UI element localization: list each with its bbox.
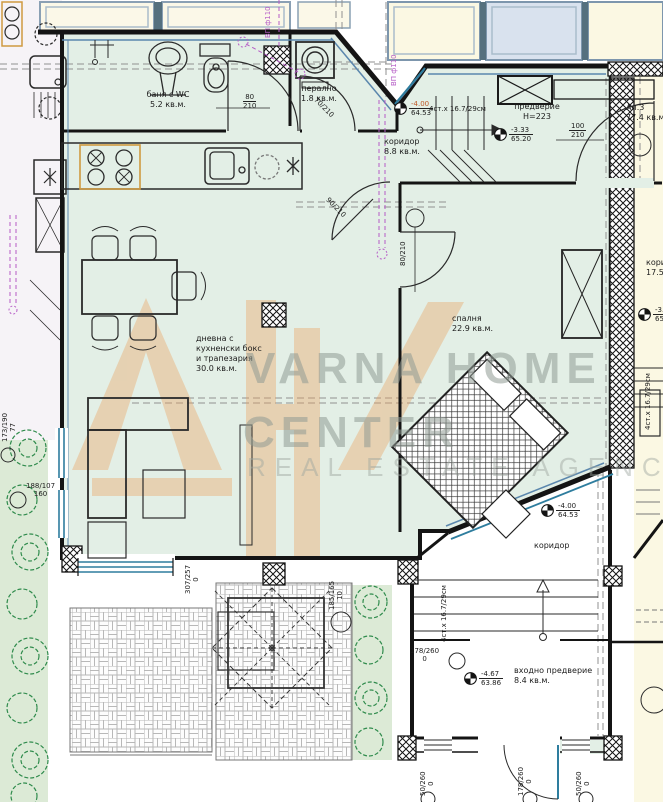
stairs-note-top: 4ст.х 16.7/29см <box>429 105 486 113</box>
pipe-label-top: ВП ф110 <box>264 6 272 38</box>
level-mark-icon <box>494 128 507 141</box>
room-label-bathroom: баня с WC5.2 кв.м. <box>136 90 200 110</box>
dim-west-window-a: 173/19077 <box>1 413 17 442</box>
dim-entry-opening: 178/2600 <box>410 647 439 663</box>
level-mark-icon <box>394 102 407 115</box>
garden-umbrella-table <box>212 588 332 708</box>
level-mark-icon <box>638 308 651 321</box>
pipe-label-corridor: ВП ф110 <box>390 54 398 86</box>
dim-living-window: 307/2570 <box>184 565 200 594</box>
dim-south-window-right: 50/2600 <box>575 771 591 796</box>
level-mark-icon <box>541 504 554 517</box>
room-label-bedroom: спалня22.9 кв.м. <box>452 314 493 334</box>
stairs-note-bottom: 4ст.х 16.7/29см <box>440 585 448 642</box>
level-marker-corridor-top: -4.0064.53 <box>394 100 433 118</box>
dim-south-door: 178/2600 <box>517 767 533 796</box>
terrace-paving <box>70 583 352 760</box>
room-label-corridor-bottom: коридор <box>534 541 570 551</box>
room-label-vestibule: предвериеН=223 <box>498 102 576 122</box>
level-marker-right: -3.3365.1 <box>638 306 663 324</box>
room-label-entry: входно предверие8.4 кв.м. <box>514 666 592 686</box>
room-label-apartment3: Ап.377.4 кв.м. <box>626 103 663 123</box>
dim-terrace-window: 185/16510 <box>328 581 344 610</box>
dim-vestibule-door: 100210 <box>569 122 586 140</box>
dim-bedroom-door: 80/210 <box>399 241 407 266</box>
floor-plan: баня с WC5.2 кв.м. пералнo1.8 кв.м. кори… <box>0 0 663 802</box>
level-mark-icon <box>464 672 477 685</box>
dim-south-window-left: 50/2600 <box>419 771 435 796</box>
stairs-note-right: 4ст.х 16.7/29см <box>644 373 652 430</box>
level-marker-entry: -4.6763.86 <box>464 670 503 688</box>
room-label-corridor-top: коридор8.8 кв.м. <box>384 137 420 157</box>
dim-bath-door: 80210 <box>243 93 256 111</box>
room-label-corridor-right: коридор17.5 <box>646 258 663 278</box>
room-label-living: дневна скухненски бокс и трапезария30.0 … <box>196 334 262 374</box>
level-marker-corridor-bottom: -4.0064.53 <box>541 502 580 520</box>
dim-west-window-b: 188/107160 <box>26 482 55 498</box>
level-marker-vestibule: -3.3365.20 <box>494 126 533 144</box>
